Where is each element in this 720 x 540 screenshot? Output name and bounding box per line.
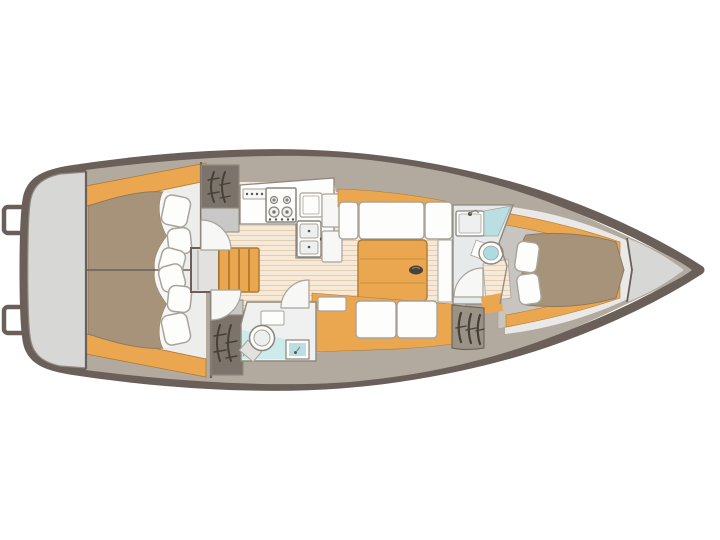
companionway-stairs (219, 248, 259, 292)
lazarette (28, 172, 86, 368)
forward-head (453, 205, 513, 314)
engine-box (191, 248, 219, 292)
locker-door (211, 315, 243, 375)
settee-starboard-cushion (356, 301, 396, 338)
sink-drain (308, 230, 311, 233)
aft-cabin (86, 163, 206, 377)
pillow (160, 194, 192, 229)
settee-starboard-cushion (397, 301, 437, 338)
forward-head-sink (456, 211, 484, 237)
pillow (160, 312, 192, 347)
sink-drain (308, 246, 311, 249)
pillow (516, 273, 542, 306)
nav-cabinet (438, 240, 452, 302)
settee-port-cushion (425, 202, 452, 239)
settee-port-cushion (339, 202, 358, 239)
louvered-locker-forward (452, 305, 484, 350)
salon-folding-table (358, 240, 427, 301)
yacht-floor-plan-canvas (0, 0, 720, 540)
settee-port-cushion (359, 202, 424, 239)
locker-door (201, 165, 239, 208)
table-pole-mount (409, 266, 423, 275)
galley-stove (266, 188, 296, 222)
aft-head-cistern (261, 311, 284, 325)
yacht-floor-plan (0, 0, 720, 540)
pillow (514, 241, 540, 274)
settee-step-shelf (318, 297, 346, 311)
aft-berth-starboard-mattress (88, 270, 167, 348)
pillow (167, 285, 193, 313)
aft-head-shower (286, 340, 309, 359)
sink-bowl (459, 214, 481, 233)
aft-berth-port-mattress (88, 192, 167, 270)
